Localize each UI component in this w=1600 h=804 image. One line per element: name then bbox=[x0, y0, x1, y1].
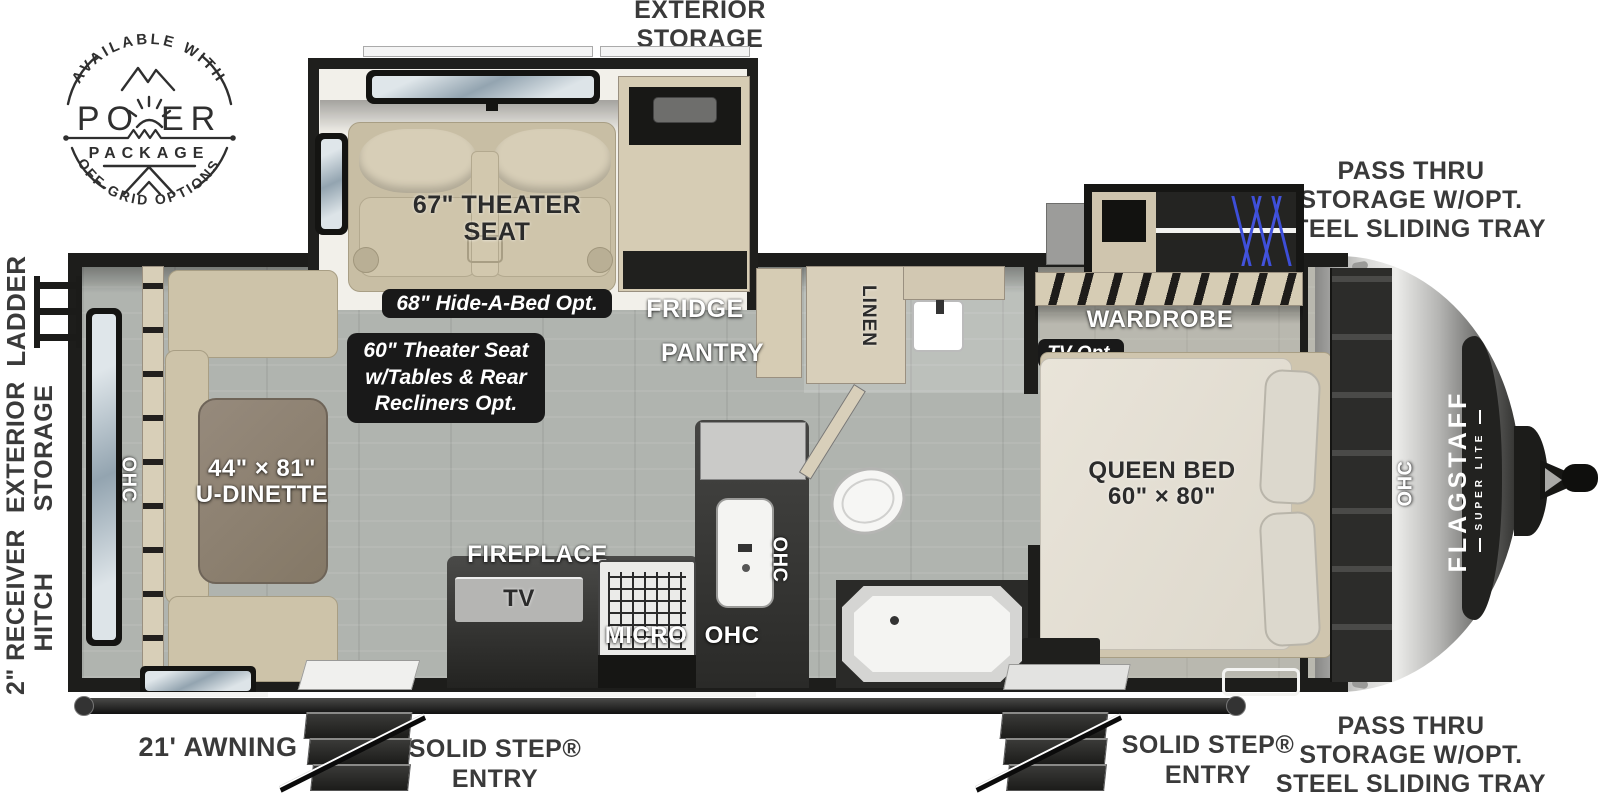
brand-model: FLAGSTAFF bbox=[1444, 376, 1473, 586]
kitchen-sink bbox=[716, 498, 774, 608]
callout-awning: 21' AWNING bbox=[128, 732, 308, 763]
wardrobe-shelf bbox=[1035, 272, 1303, 306]
callout-line: PASS THRU bbox=[1266, 157, 1556, 186]
slideout-window-side bbox=[315, 133, 348, 235]
ladder-rung bbox=[34, 308, 82, 315]
label-line: SEAT bbox=[378, 219, 616, 246]
window-glass bbox=[372, 76, 594, 98]
brand-logo: FLAGSTAFF SUPER LITE bbox=[1444, 376, 1490, 586]
entry-threshold bbox=[1003, 664, 1131, 690]
shower-drain bbox=[890, 616, 899, 625]
ladder-rung bbox=[34, 334, 82, 341]
window-latch bbox=[486, 103, 498, 111]
pillow bbox=[1259, 511, 1322, 648]
awning-rail-strip bbox=[120, 692, 268, 697]
pass-thru-storage-box bbox=[1084, 184, 1304, 280]
brand-dash bbox=[1479, 538, 1481, 552]
window-glass bbox=[321, 139, 342, 229]
callout-line: STEEL SLIDING TRAY bbox=[1266, 215, 1556, 244]
wall-top-mid bbox=[756, 253, 1092, 267]
fridge-front bbox=[623, 251, 747, 289]
faucet-icon bbox=[936, 300, 944, 314]
awning-end-cap bbox=[1226, 696, 1246, 716]
seat-armrest bbox=[353, 247, 379, 273]
pill-line: Recliners Opt. bbox=[375, 391, 517, 418]
slideout-roof-strip bbox=[600, 46, 750, 57]
dinette-label: 44" × 81" U-DINETTE bbox=[178, 456, 346, 508]
mountains-icon bbox=[122, 68, 174, 90]
toilet-seat bbox=[835, 471, 901, 531]
shower-pan bbox=[842, 586, 1022, 682]
brand-trim: SUPER LITE bbox=[1474, 432, 1485, 531]
compartment-opening bbox=[1102, 200, 1146, 242]
callout-line: 2" RECEIVER bbox=[2, 528, 30, 696]
fridge-label: FRIDGE bbox=[645, 295, 745, 324]
entry-threshold bbox=[298, 660, 421, 690]
ohc-label-dinette: OHC bbox=[117, 448, 140, 512]
label-line: 67" THEATER bbox=[378, 192, 616, 219]
bath-vanity bbox=[903, 266, 1005, 300]
window-glass bbox=[92, 314, 116, 640]
callout-line: STORAGE W/OPT. bbox=[1266, 741, 1556, 770]
seat-back-cushion bbox=[359, 129, 477, 193]
slideout-roof-strip bbox=[363, 46, 593, 57]
callout-entry-right: SOLID STEP® ENTRY bbox=[1118, 730, 1298, 790]
clothes-hangers-icon bbox=[1238, 196, 1290, 268]
wardrobe-compartment bbox=[1092, 192, 1156, 272]
wall-top-rear bbox=[68, 253, 310, 267]
range-base bbox=[598, 655, 696, 688]
theater-seat-option-pill: 60" Theater Seat w/Tables & Rear Recline… bbox=[347, 333, 545, 423]
entry-steps bbox=[292, 712, 423, 796]
tv-label: TV bbox=[455, 585, 583, 613]
sink-drain bbox=[742, 564, 750, 572]
ohc-label-kitchen-side: OHC bbox=[768, 531, 791, 589]
awning-rail-strip bbox=[560, 692, 756, 697]
step-tread bbox=[304, 712, 413, 739]
step-well-window bbox=[1222, 668, 1300, 696]
badge-power-left: PO bbox=[77, 100, 140, 138]
brand-dash bbox=[1479, 410, 1481, 424]
shower-pan-inner bbox=[854, 596, 1010, 672]
hanger bbox=[1251, 196, 1271, 266]
hanger bbox=[1271, 196, 1291, 266]
wardrobe-label: WARDROBE bbox=[1060, 306, 1260, 334]
callout-line: STORAGE W/OPT. bbox=[1266, 186, 1556, 215]
slideout-cabinet bbox=[618, 76, 750, 292]
linen-label: LINEN bbox=[857, 275, 879, 357]
cabinet-tray bbox=[653, 97, 717, 123]
callout-exterior-storage-side: EXTERIOR STORAGE bbox=[2, 383, 58, 513]
callout-line: EXTERIOR bbox=[2, 383, 30, 513]
hanger bbox=[1261, 196, 1281, 266]
hide-a-bed-option-pill: 68" Hide-A-Bed Opt. bbox=[382, 289, 612, 318]
power-package-badge: AVAILABLE WITH OFF-GRID OPTIONS PO ER PA… bbox=[52, 26, 247, 221]
badge-top-arc-text: AVAILABLE WITH bbox=[69, 31, 230, 87]
ladder-icon bbox=[34, 276, 82, 348]
callout-line: STEEL SLIDING TRAY bbox=[1266, 770, 1556, 799]
callout-line: SOLID STEP® bbox=[1118, 730, 1298, 760]
dinette-bench-top bbox=[168, 270, 338, 358]
label-line: U-DINETTE bbox=[178, 482, 346, 508]
ohc-label-bedroom: OHC bbox=[1395, 452, 1418, 516]
callout-line: EXTERIOR bbox=[610, 0, 790, 25]
entry-steps bbox=[988, 712, 1119, 796]
label-line: 60" × 80" bbox=[1078, 484, 1246, 510]
slideout-window-top bbox=[366, 70, 600, 104]
callout-ladder: LADDER bbox=[1, 251, 31, 371]
pass-thru-step-box bbox=[1046, 203, 1088, 265]
callout-line: ENTRY bbox=[405, 764, 585, 794]
ohc-cabinet-bedroom bbox=[1330, 268, 1392, 682]
label-line: 44" × 81" bbox=[178, 456, 346, 482]
callout-pass-thru-top: PASS THRU STORAGE W/OPT. STEEL SLIDING T… bbox=[1266, 157, 1556, 244]
tongue-jack-icon bbox=[1562, 464, 1598, 492]
pantry-label: PANTRY bbox=[655, 339, 770, 368]
seat-back-cushion bbox=[493, 129, 611, 193]
bath-sink bbox=[912, 300, 964, 352]
queen-bed-label: QUEEN BED 60" × 80" bbox=[1078, 458, 1246, 510]
svg-text:AVAILABLE WITH: AVAILABLE WITH bbox=[69, 31, 230, 87]
awning-end-cap bbox=[74, 696, 94, 716]
callout-line: STORAGE bbox=[30, 383, 58, 513]
badge-package-text: PACKAGE bbox=[89, 145, 210, 162]
window-glass bbox=[145, 671, 251, 691]
pill-line: w/Tables & Rear bbox=[365, 365, 526, 392]
callout-line: PASS THRU bbox=[1266, 712, 1556, 741]
callout-entry-left: SOLID STEP® ENTRY bbox=[405, 734, 585, 794]
faucet-icon bbox=[738, 544, 752, 552]
callout-line: HITCH bbox=[30, 528, 58, 696]
floorplan-canvas: AVAILABLE WITH OFF-GRID OPTIONS PO ER PA… bbox=[0, 0, 1600, 804]
linen-cabinet bbox=[806, 266, 906, 384]
step-tread bbox=[1000, 712, 1109, 739]
seat-armrest bbox=[587, 247, 613, 273]
badge-power-right: ER bbox=[161, 100, 222, 138]
fireplace-label: FIREPLACE bbox=[455, 541, 620, 569]
callout-line: ENTRY bbox=[1118, 760, 1298, 790]
ohc-label-kitchen: OHC bbox=[700, 622, 764, 650]
peninsula-counter-flap bbox=[700, 422, 806, 480]
pillow bbox=[1259, 369, 1322, 506]
sun-icon bbox=[137, 120, 162, 127]
label-line: QUEEN BED bbox=[1078, 458, 1246, 484]
ohc-cabinet-rear bbox=[142, 266, 164, 680]
micro-label: MICRO bbox=[597, 622, 695, 650]
callout-pass-thru-bottom: PASS THRU STORAGE W/OPT. STEEL SLIDING T… bbox=[1266, 712, 1556, 799]
pill-line: 60" Theater Seat bbox=[363, 338, 528, 365]
callout-receiver-hitch: 2" RECEIVER HITCH bbox=[2, 528, 58, 696]
theater-seat-label: 67" THEATER SEAT bbox=[378, 192, 616, 246]
hanger bbox=[1241, 196, 1261, 266]
ladder-rung bbox=[34, 282, 82, 289]
callout-line: SOLID STEP® bbox=[405, 734, 585, 764]
